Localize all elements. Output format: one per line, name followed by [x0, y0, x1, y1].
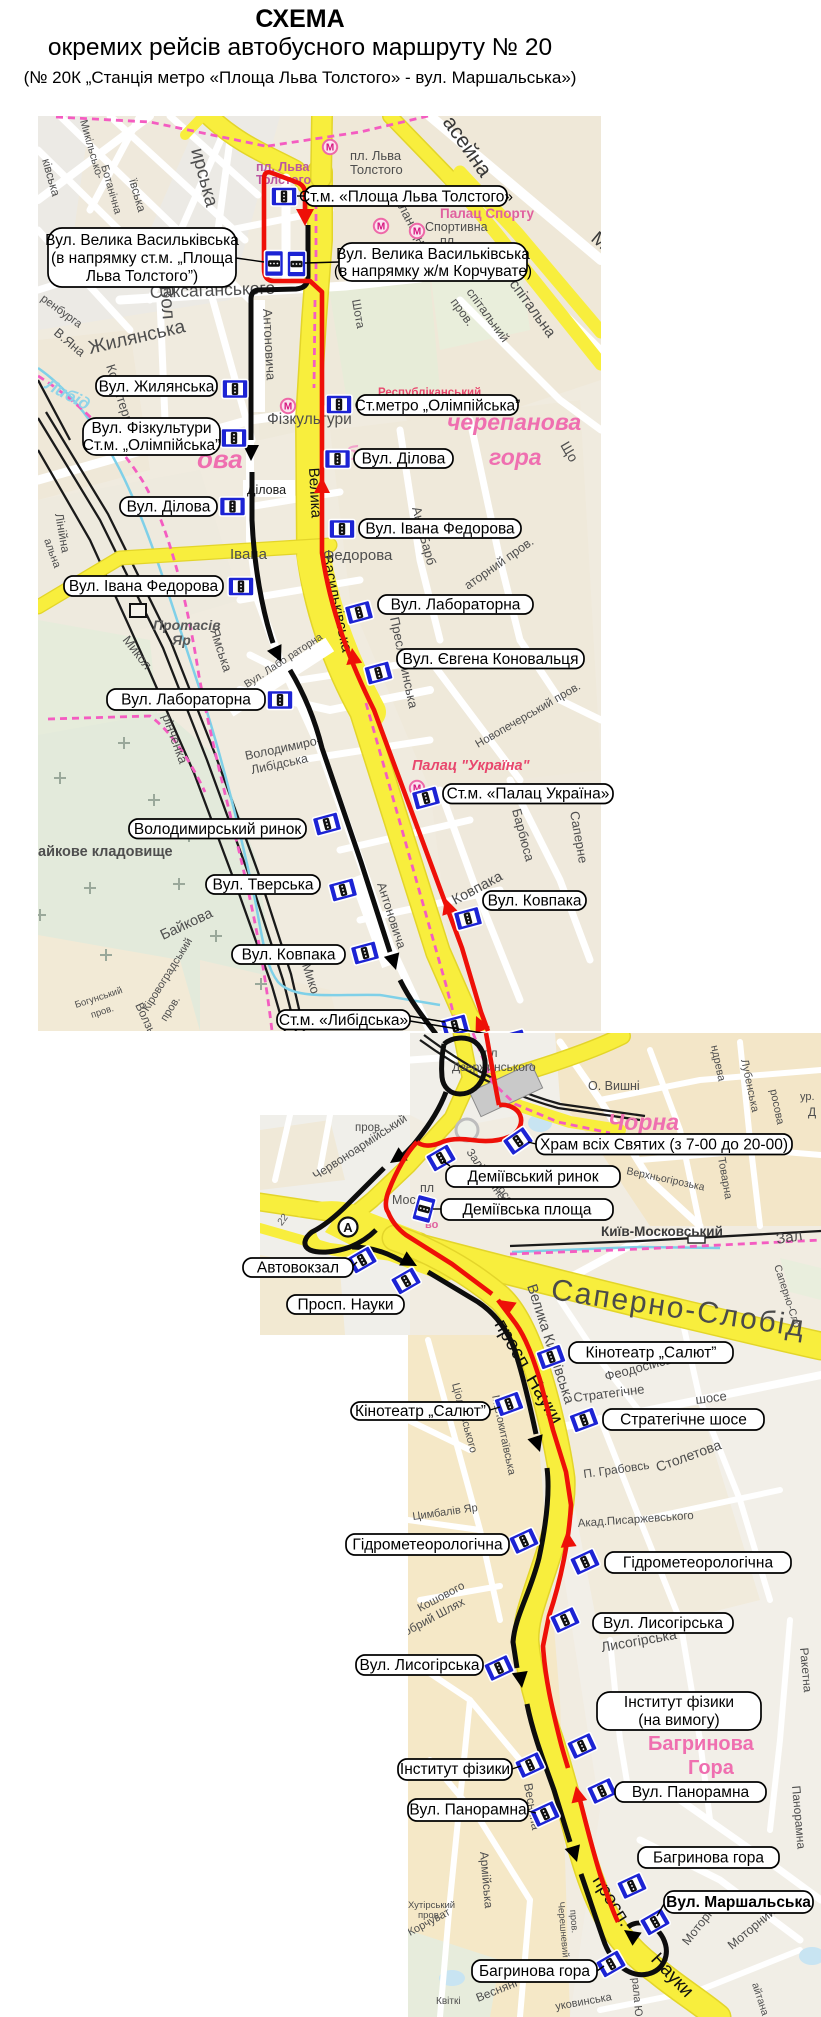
svg-text:Кінотеатр „Салют”: Кінотеатр „Салют”: [355, 1403, 486, 1420]
svg-text:Квіткі: Квіткі: [436, 1996, 461, 2007]
svg-text:Вул. Лисогірська: Вул. Лисогірська: [603, 1615, 723, 1632]
svg-text:Гора: Гора: [688, 1757, 735, 1779]
svg-text:Деміївський ринок: Деміївський ринок: [467, 1169, 598, 1186]
svg-text:Вул. Жилянська: Вул. Жилянська: [99, 379, 215, 396]
svg-text:Деміївська площа: Деміївська площа: [462, 1202, 591, 1219]
svg-text:Автовокзал: Автовокзал: [257, 1260, 339, 1277]
svg-text:Вул. Івана Федорова: Вул. Івана Федорова: [69, 578, 219, 595]
svg-text:Вул. Ділова: Вул. Ділова: [127, 499, 211, 516]
svg-text:Інститут фізики: Інститут фізики: [400, 1761, 510, 1778]
svg-text:Чорна: Чорна: [608, 1109, 679, 1135]
svg-text:Вул. Тверська: Вул. Тверська: [213, 877, 314, 894]
svg-text:Вул. Маршальська: Вул. Маршальська: [666, 1894, 811, 1911]
svg-text:айкове кладовище: айкове кладовище: [38, 844, 173, 860]
svg-text:А: А: [343, 1220, 353, 1235]
svg-text:ур.: ур.: [800, 1091, 815, 1103]
svg-text:Просп. Науки: Просп. Науки: [298, 1297, 394, 1314]
svg-text:Івана: Івана: [230, 546, 268, 563]
svg-text:О. Вишні: О. Вишні: [588, 1079, 640, 1093]
svg-text:(на вимогу): (на вимогу): [638, 1712, 719, 1729]
svg-text:Багринова: Багринова: [648, 1733, 755, 1755]
svg-text:Вул. Панорамна: Вул. Панорамна: [632, 1784, 750, 1801]
svg-text:Спортивна: Спортивна: [425, 220, 488, 234]
svg-text:Вул. Євгена Коновальця: Вул. Євгена Коновальця: [403, 651, 579, 668]
svg-text:Яр: Яр: [171, 632, 191, 648]
svg-text:Д: Д: [808, 1105, 816, 1119]
svg-text:Гідрометеорологічна: Гідрометеорологічна: [623, 1555, 774, 1572]
svg-text:окремих рейсів автобусного ма: окремих рейсів автобусного маршруту № 20: [48, 34, 552, 61]
svg-text:Вул. Лисогірська: Вул. Лисогірська: [360, 1657, 480, 1674]
svg-text:пл. Льва: пл. Льва: [350, 148, 402, 163]
svg-text:Вул. Ковпака: Вул. Ковпака: [488, 893, 582, 910]
svg-text:СХЕМА: СХЕМА: [255, 5, 344, 33]
svg-text:Палац Спорту: Палац Спорту: [440, 206, 535, 221]
svg-text:Льва Толстого”): Льва Толстого”): [86, 268, 198, 285]
svg-text:Гідрометеорологічна: Гідрометеорологічна: [352, 1537, 503, 1554]
svg-text:Стратегічне шосе: Стратегічне шосе: [620, 1412, 747, 1429]
svg-text:Федорова: Федорова: [323, 547, 393, 564]
svg-text:Палац "Україна": Палац "Україна": [412, 758, 531, 774]
svg-text:Київ-Московський: Київ-Московський: [601, 1224, 723, 1239]
svg-text:Ст.метро „Олімпійська”: Ст.метро „Олімпійська”: [355, 398, 521, 415]
svg-text:Ст.м. «Палац Україна»: Ст.м. «Палац Україна»: [447, 786, 610, 803]
svg-text:Вул. Ковпака: Вул. Ковпака: [242, 947, 336, 964]
svg-text:пров.: пров.: [567, 1909, 580, 1933]
svg-text:(№ 20К „Станція метро «Площа Л: (№ 20К „Станція метро «Площа Льва Толсто…: [24, 68, 577, 87]
svg-text:Володимирський ринок: Володимирський ринок: [134, 821, 301, 838]
svg-text:Вул. Велика Васильківська: Вул. Велика Васильківська: [45, 232, 239, 249]
svg-text:Вул. Лабораторна: Вул. Лабораторна: [121, 692, 251, 709]
svg-text:Вул. Лабораторна: Вул. Лабораторна: [391, 597, 521, 614]
svg-text:Вол: Вол: [155, 285, 179, 321]
svg-text:Кінотеатр „Салют”: Кінотеатр „Салют”: [586, 1345, 717, 1362]
svg-text:Багринова гора: Багринова гора: [653, 1850, 764, 1867]
svg-text:Вул. Івана Федорова: Вул. Івана Федорова: [365, 521, 515, 538]
svg-text:Вул. Панорамна: Вул. Панорамна: [409, 1802, 527, 1819]
svg-text:Інститут фізики: Інститут фізики: [624, 1694, 734, 1711]
svg-text:Вул. Фізкультури: Вул. Фізкультури: [92, 420, 212, 437]
svg-text:Храм всіх Святих (з 7-00 до 20: Храм всіх Святих (з 7-00 до 20-00): [540, 1137, 788, 1154]
svg-text:Ст.м. „Олімпійська”: Ст.м. „Олімпійська”: [83, 437, 221, 454]
svg-text:(в напрямку ж/м Корчувате): (в напрямку ж/м Корчувате): [334, 263, 532, 280]
svg-text:Толстого: Толстого: [350, 162, 403, 177]
svg-text:(в напрямку ст.м. „Площа: (в напрямку ст.м. „Площа: [51, 250, 233, 267]
svg-text:Ст.м. «Либідська»: Ст.м. «Либідська»: [279, 1012, 408, 1029]
svg-text:гора: гора: [489, 444, 542, 470]
svg-text:Вул. Ділова: Вул. Ділова: [362, 451, 446, 468]
svg-text:Ст.м. «Площа Льва Толстого»: Ст.м. «Площа Льва Толстого»: [299, 189, 513, 206]
svg-text:Багринова гора: Багринова гора: [479, 1963, 590, 1980]
svg-text:Вул. Велика Васильківська: Вул. Велика Васильківська: [336, 246, 530, 263]
